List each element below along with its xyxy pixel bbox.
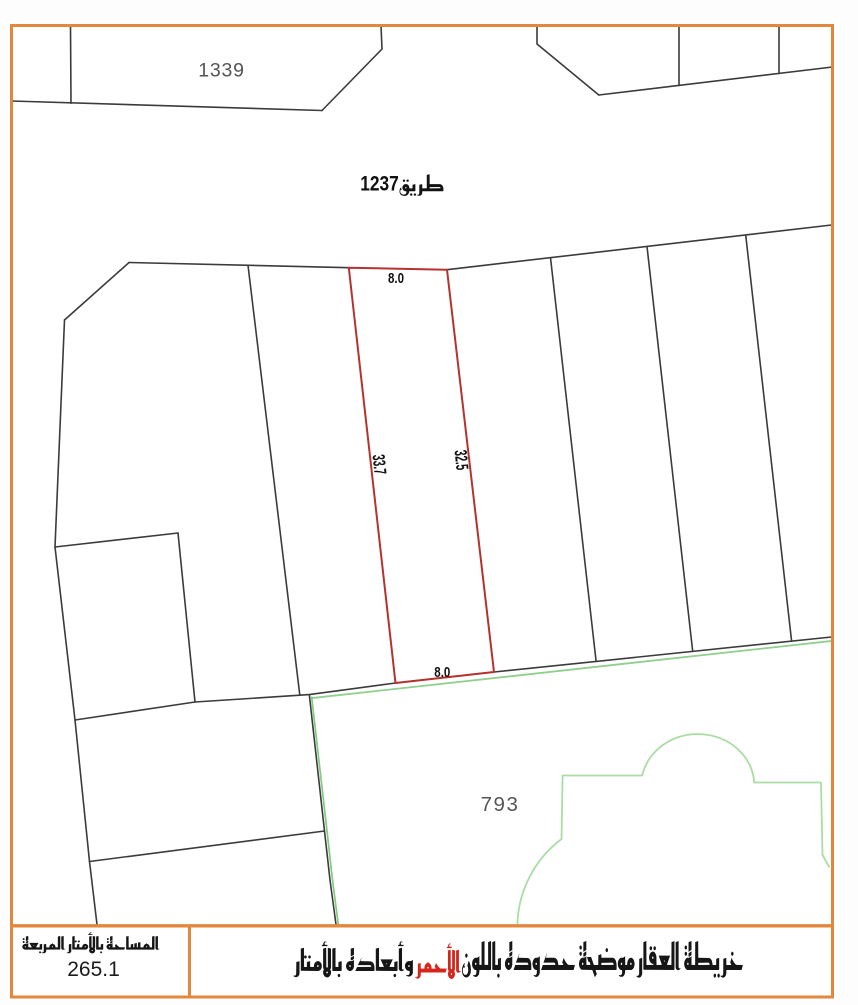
svg-text:1237: 1237: [360, 173, 399, 196]
svg-text:32.5: 32.5: [451, 449, 473, 471]
svg-text:793: 793: [481, 793, 520, 816]
svg-text:1339: 1339: [198, 60, 245, 82]
svg-text:33.7: 33.7: [369, 453, 391, 475]
svg-text:8.0: 8.0: [434, 665, 450, 681]
svg-text:8.0: 8.0: [388, 271, 404, 287]
svg-text:265.1: 265.1: [67, 958, 120, 981]
